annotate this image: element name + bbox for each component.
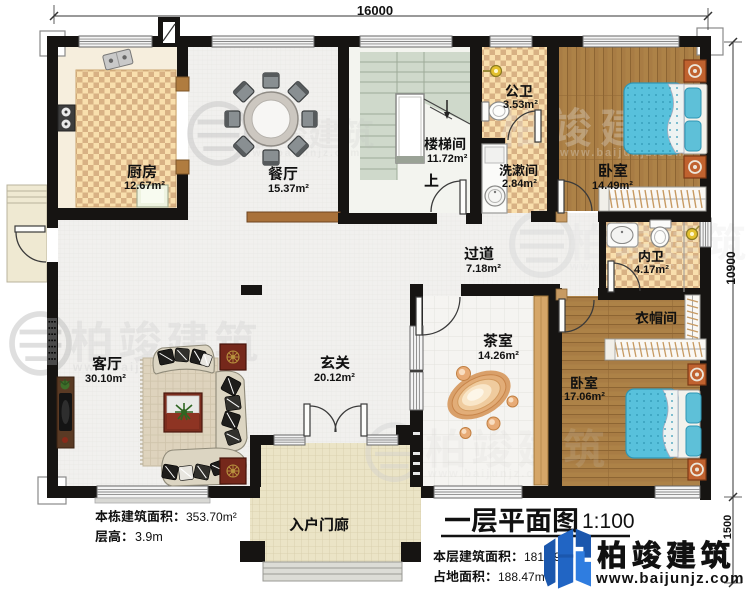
svg-text:14.26m²: 14.26m² [478,350,519,362]
svg-text:11.72m²: 11.72m² [427,153,468,165]
svg-text:www.baijunjz.com: www.baijunjz.com [595,570,745,587]
svg-text:30.10m²: 30.10m² [85,373,126,385]
svg-text:15.37m²: 15.37m² [268,183,309,195]
svg-text:3.9m: 3.9m [135,530,163,544]
svg-text:12.67m²: 12.67m² [124,180,165,192]
svg-text:1500: 1500 [722,515,734,539]
svg-text:1:100: 1:100 [582,510,635,533]
svg-text:14.49m²: 14.49m² [592,180,633,192]
svg-text:10900: 10900 [724,251,738,285]
svg-text:16000: 16000 [357,3,393,18]
svg-text:188.47m²: 188.47m² [498,570,549,584]
svg-text:4.17m²: 4.17m² [634,264,669,276]
svg-text:17.06m²: 17.06m² [564,391,605,403]
svg-text:353.70m²: 353.70m² [186,510,237,524]
svg-text:7.18m²: 7.18m² [466,263,501,275]
svg-text:2.84m²: 2.84m² [502,178,537,190]
svg-text:www.baijunjz.com: www.baijunjz.com [569,261,697,273]
svg-text:20.12m²: 20.12m² [314,372,355,384]
svg-text:3.53m²: 3.53m² [503,99,538,111]
